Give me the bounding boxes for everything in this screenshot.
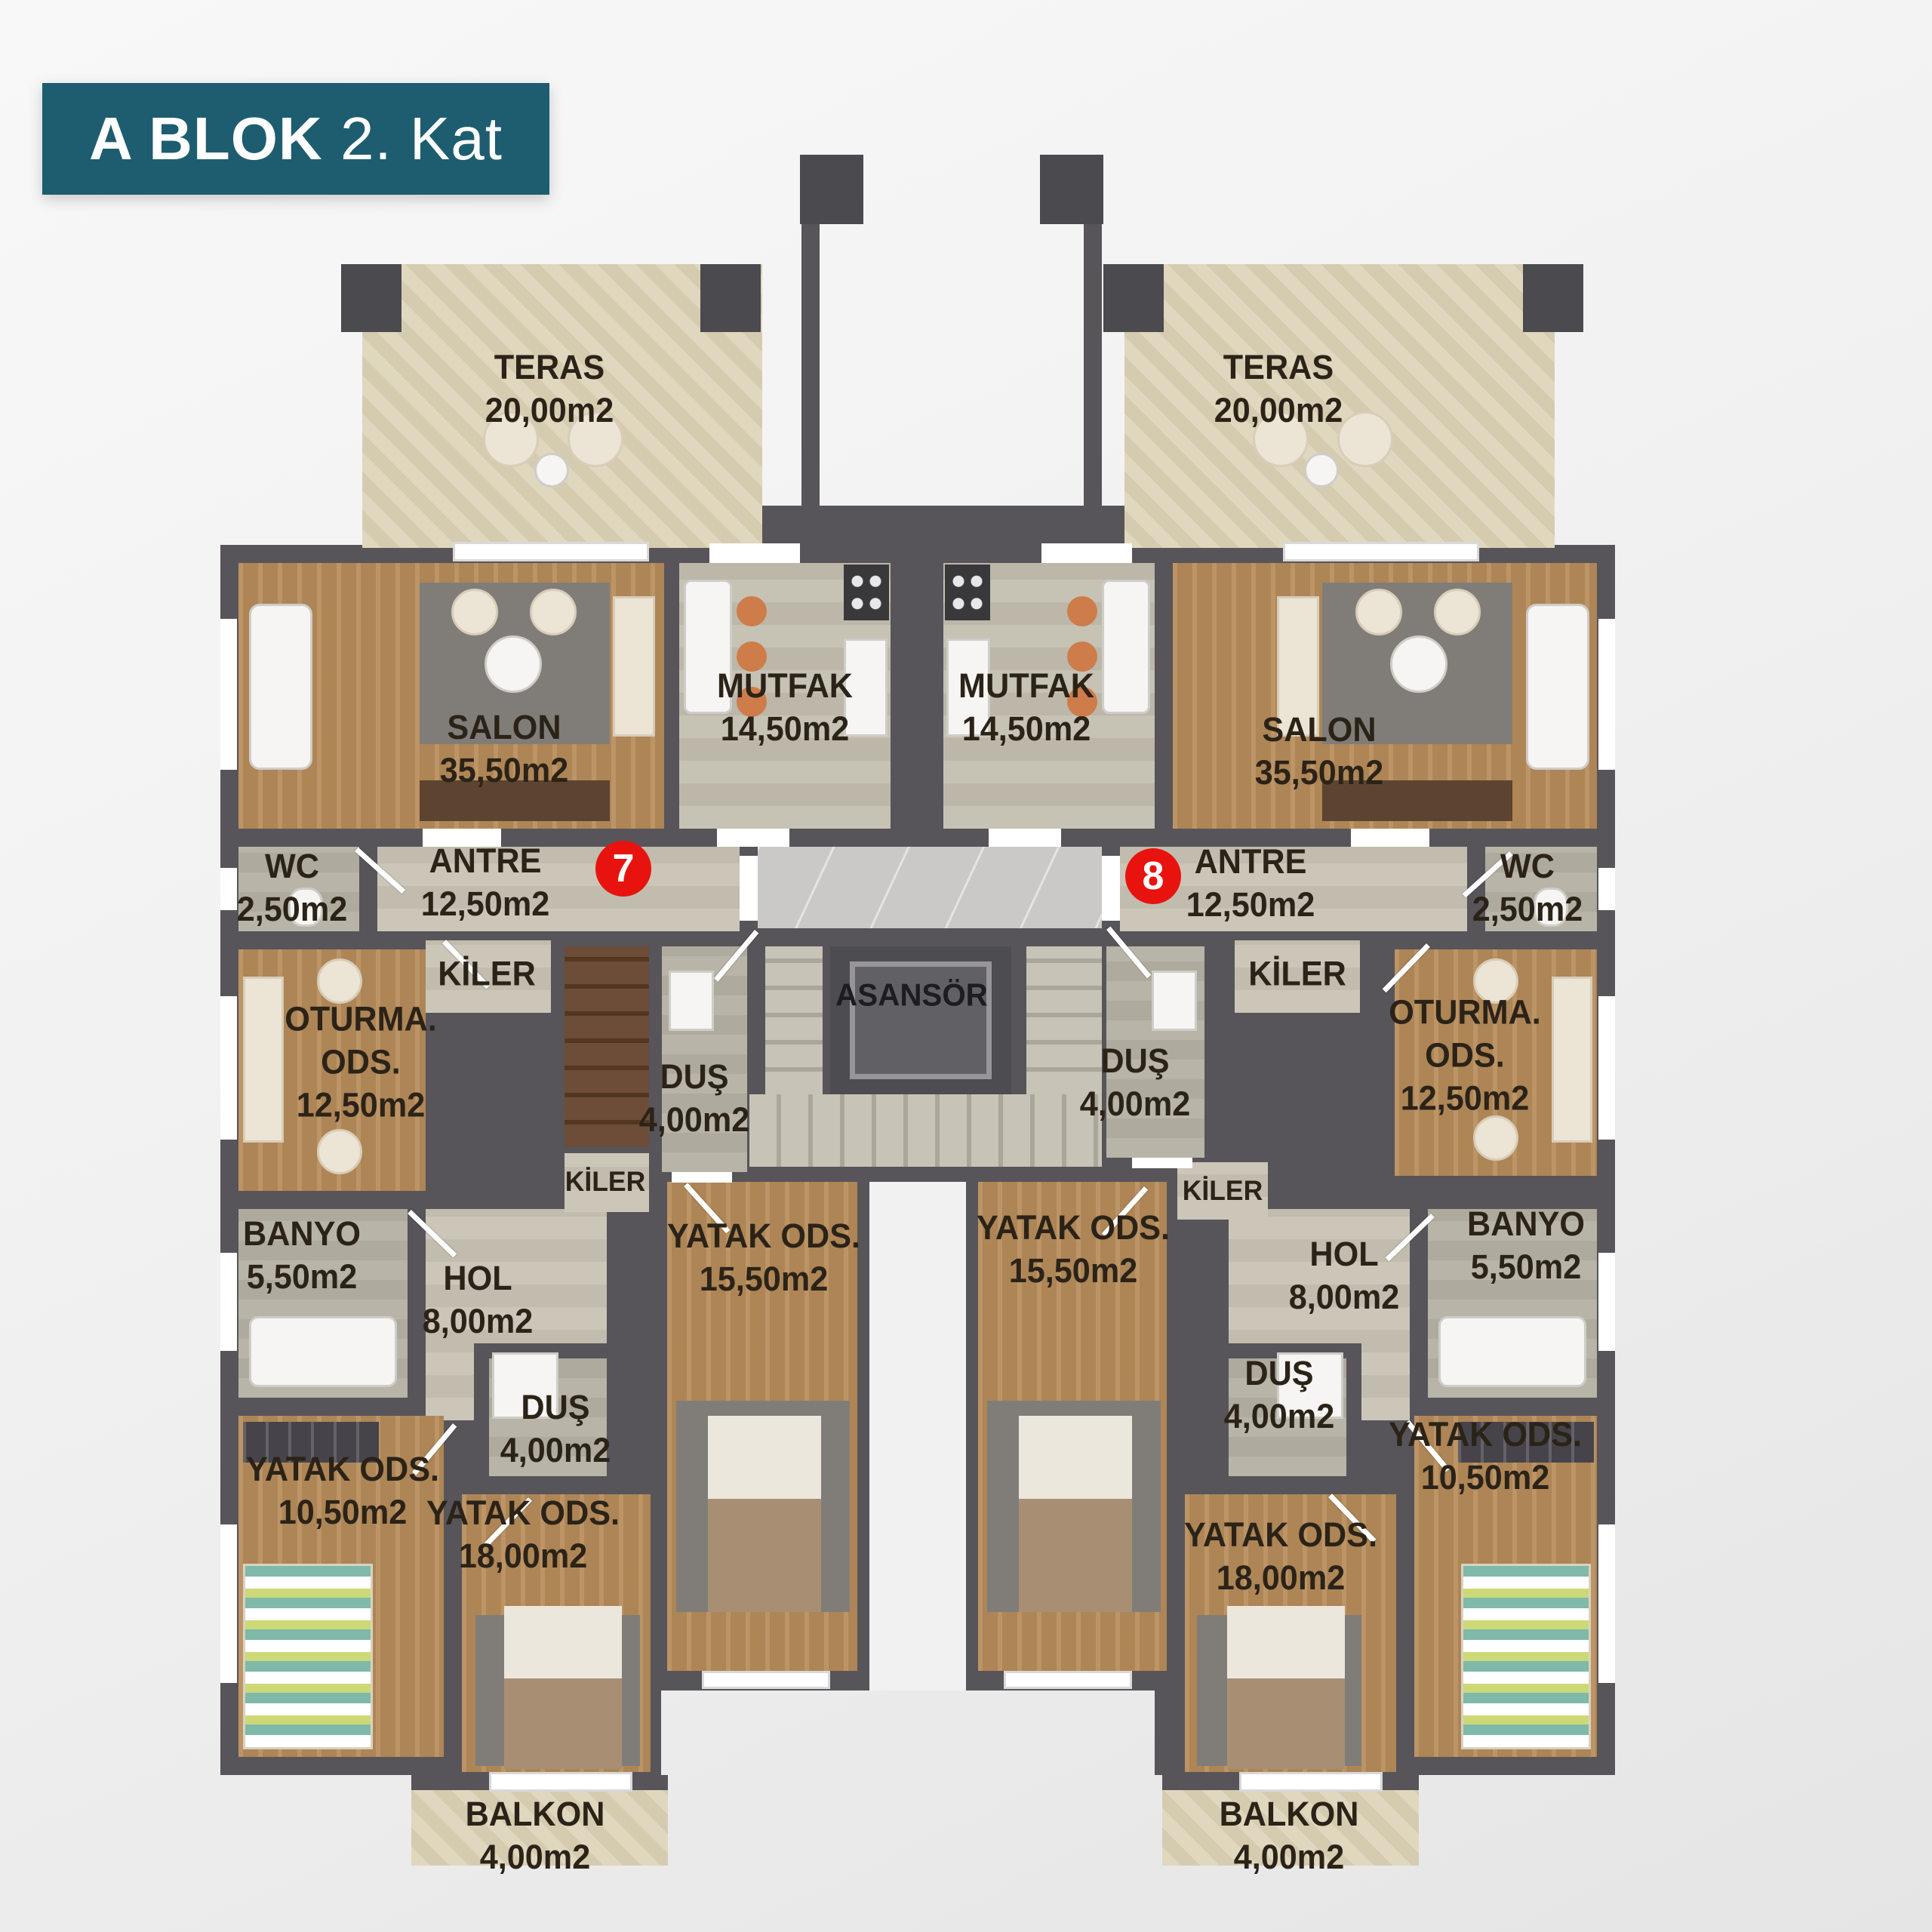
label-asansor: ASANSÖR (835, 974, 988, 1017)
window-yatak10-left (220, 1524, 237, 1683)
label-balkon-right: BALKON4,00m2 (1220, 1792, 1359, 1878)
washer-icon (669, 971, 714, 1031)
teras-table-icon (534, 453, 569, 488)
wall-notch-right (1084, 224, 1102, 509)
label-yatak-left-18: YATAK ODS.18,00m2 (426, 1491, 620, 1577)
elevator-shaft (830, 946, 1011, 1094)
window-banyo-right (1598, 1253, 1615, 1351)
label-yatak-left-10: YATAK ODS.10,50m2 (246, 1447, 439, 1534)
pillar-teras-right-a (1103, 264, 1164, 332)
label-kiler-left-lower: KİLER (565, 1165, 646, 1198)
dining-table (1526, 604, 1589, 770)
title-banner: A BLOK 2. Kat (42, 83, 549, 195)
bed-striped (243, 1564, 373, 1749)
wall-kitchen-divider (891, 528, 943, 829)
window-yatak15-left (702, 1671, 830, 1689)
label-dus-left-lower: DUŞ4,00m2 (500, 1386, 611, 1472)
label-balkon-left: BALKON4,00m2 (466, 1792, 605, 1878)
salon-coffee-table (1390, 635, 1447, 693)
stairs-landing (749, 1094, 1102, 1167)
door-dus-right-mid (1132, 1158, 1192, 1168)
salon-armchair (1434, 589, 1481, 635)
bed-head (708, 1416, 821, 1499)
door-dus-left-mid (672, 1172, 732, 1183)
label-yatak-right-18: YATAK ODS.18,00m2 (1184, 1513, 1377, 1599)
window-yatak10-right (1598, 1524, 1615, 1683)
door-mutfak-right-teras (1041, 543, 1132, 563)
label-teras-left: TERAS20,00m2 (485, 346, 614, 432)
window-wc-right (1598, 868, 1615, 910)
label-wc-left: WC2,50m2 (237, 844, 348, 931)
floor-name: 2. Kat (323, 104, 503, 174)
stairs-stone-left (765, 946, 823, 1094)
label-mutfak-left: MUTFAK14,50m2 (717, 664, 853, 750)
label-teras-right: TERAS20,00m2 (1214, 346, 1343, 432)
pillar-notch-left (800, 155, 863, 224)
washer-icon (1152, 971, 1197, 1031)
kitchen-chair (1067, 596, 1097, 626)
kitchen-table (1102, 580, 1150, 714)
window-salon-right-side (1598, 619, 1615, 770)
bathtub-icon (1438, 1316, 1586, 1387)
oturma-sofa (1552, 977, 1592, 1143)
pillar-teras-left-a (341, 264, 401, 332)
kitchen-chair (737, 596, 767, 626)
window-wc-left (220, 868, 237, 910)
label-yatak-left-15: YATAK ODS.15,50m2 (667, 1214, 860, 1300)
label-dus-left-mid: DUŞ4,00m2 (639, 1055, 750, 1141)
bed-blanket (1019, 1499, 1132, 1612)
oturma-sofa (243, 977, 284, 1143)
label-yatak-right-15: YATAK ODS.15,50m2 (977, 1206, 1170, 1292)
window-oturma-left (220, 996, 237, 1140)
teras-table-icon (1304, 453, 1339, 488)
balcony-door-right (1239, 1772, 1383, 1792)
landing-corridor (758, 847, 1102, 928)
balcony-door-left (489, 1772, 632, 1792)
label-banyo-left: BANYO5,50m2 (243, 1212, 361, 1298)
label-oturma-right: OTURMA.ODS.12,50m2 (1389, 991, 1541, 1120)
wall-notch-left (801, 224, 820, 509)
bed-blanket (708, 1499, 821, 1612)
label-yatak-right-10: YATAK ODS.10,50m2 (1389, 1413, 1582, 1499)
label-dus-right-lower: DUŞ4,00m2 (1224, 1352, 1335, 1438)
label-dus-right-mid: DUŞ4,00m2 (1080, 1039, 1191, 1125)
label-salon-right: SALON35,50m2 (1255, 708, 1384, 794)
label-oturma-left: OTURMA.ODS.12,50m2 (285, 998, 437, 1127)
label-antre-right: ANTRE12,50m2 (1186, 840, 1315, 926)
bed-blanket (1227, 1678, 1345, 1769)
bed-head (504, 1606, 622, 1678)
door-entry-left (740, 856, 758, 921)
salon-coffee-table (485, 635, 542, 693)
door-mutfak-right (989, 829, 1061, 847)
window-banyo-left (220, 1253, 237, 1351)
label-kiler-left-upper: KİLER (438, 952, 536, 995)
bed-striped (1461, 1564, 1591, 1749)
bathtub-icon (249, 1316, 397, 1387)
pillar-teras-right-b (1523, 264, 1583, 332)
label-antre-left: ANTRE12,50m2 (421, 839, 550, 925)
oturma-armchair (1473, 1115, 1518, 1161)
salon-sofa (613, 596, 655, 737)
label-salon-left: SALON35,50m2 (440, 706, 569, 792)
salon-armchair (530, 589, 577, 635)
salon-armchair (1355, 589, 1402, 635)
window-salon-right (1283, 542, 1479, 561)
oturma-armchair (317, 1129, 362, 1174)
pillar-teras-left-b (700, 264, 761, 332)
label-hol-left: HOL8,00m2 (423, 1257, 534, 1343)
pillar-notch-right (1040, 155, 1103, 224)
stairs-brown-left (565, 946, 649, 1147)
door-entry-right (1102, 856, 1120, 921)
stove-left-icon (844, 565, 889, 620)
label-kiler-right-upper: KİLER (1248, 952, 1346, 995)
door-salon-right (1351, 829, 1429, 847)
dining-table (249, 604, 312, 770)
salon-armchair (451, 589, 498, 635)
window-oturma-right (1598, 996, 1615, 1140)
window-salon-left (453, 542, 649, 561)
bed-head (1227, 1606, 1345, 1678)
label-hol-right: HOL8,00m2 (1289, 1232, 1400, 1318)
light-well-gap (869, 1182, 966, 1690)
door-mutfak-left (717, 829, 789, 847)
label-banyo-right: BANYO5,50m2 (1467, 1202, 1585, 1288)
teras-chair-icon (1337, 411, 1393, 467)
door-mutfak-left-teras (709, 543, 800, 563)
unit-marker-8: 8 (1125, 848, 1181, 904)
block-name: A BLOK (89, 104, 323, 174)
label-wc-right: WC2,50m2 (1472, 844, 1583, 931)
bed-head (1019, 1416, 1132, 1499)
unit-marker-7: 7 (595, 841, 651, 897)
window-salon-left-side (220, 619, 237, 770)
window-yatak15-right (1004, 1671, 1132, 1689)
label-mutfak-right: MUTFAK14,50m2 (958, 664, 1094, 750)
bed-blanket (504, 1678, 622, 1769)
label-kiler-right-lower: KİLER (1183, 1174, 1263, 1207)
stove-right-icon (945, 565, 990, 620)
